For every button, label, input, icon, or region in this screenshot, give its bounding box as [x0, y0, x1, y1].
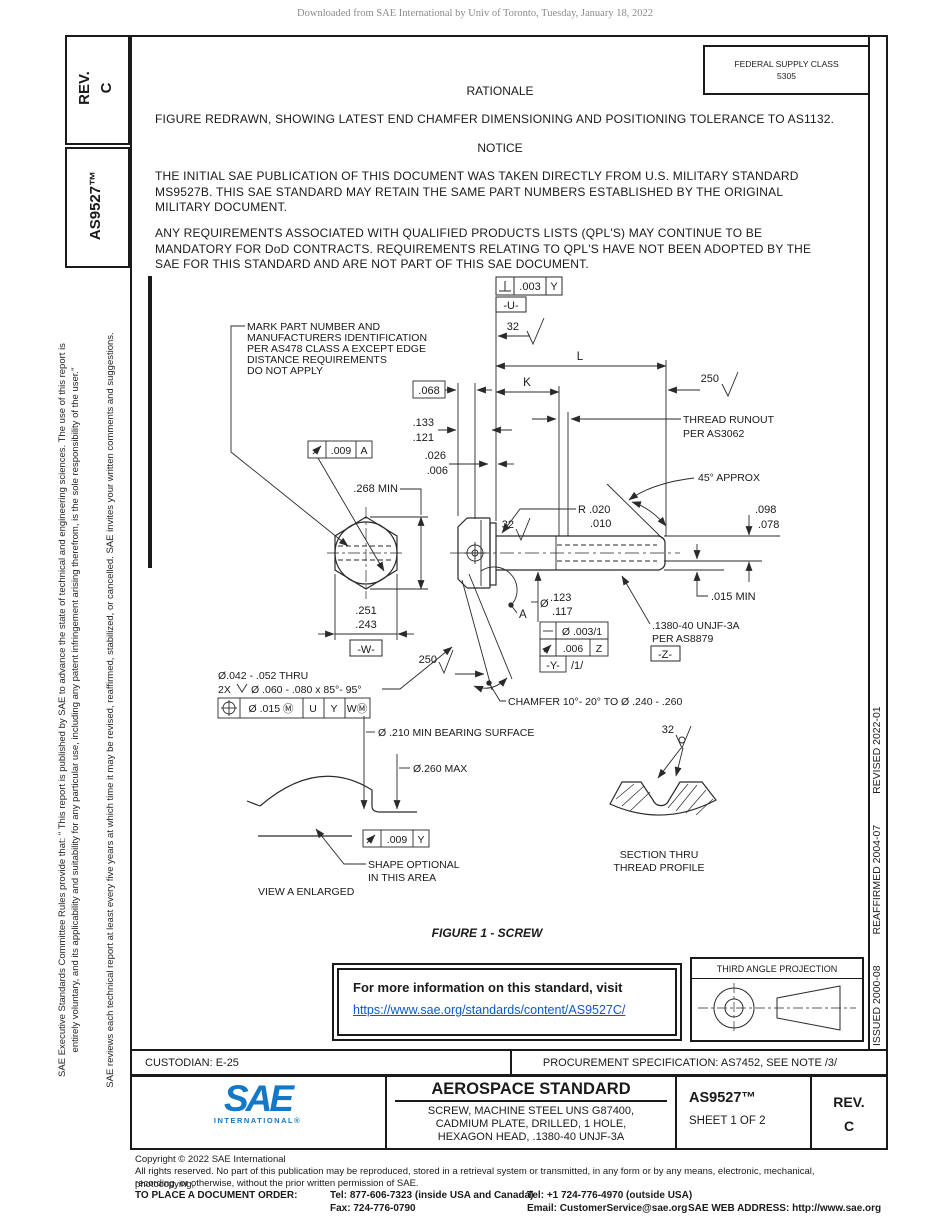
- order-tel-1: Tel: 877-606-7323 (inside USA and Canada…: [330, 1190, 533, 1201]
- custodian-cell: CUSTODIAN: E-25: [145, 1057, 239, 1069]
- dim-r010-label: .010: [590, 518, 611, 530]
- finish-32-top: 32: [498, 318, 544, 344]
- thread-note-2: PER AS8879: [652, 633, 713, 645]
- figure-caption: FIGURE 1 - SCREW: [432, 926, 544, 940]
- pos-datum-3: WⓂ: [347, 703, 368, 715]
- extension-lines: [458, 312, 666, 536]
- more-info-box: For more information on this standard, v…: [332, 963, 682, 1041]
- section-thread-profile: [610, 782, 716, 815]
- dim-026-006: .026 .006: [425, 450, 514, 477]
- dim-260-max: Ø.260 MAX: [397, 754, 467, 809]
- shape-note-1: SHAPE OPTIONAL: [368, 859, 460, 871]
- doc-type-underline: [395, 1100, 667, 1102]
- doc-number-cell: AS9527™ SHEET 1 OF 2: [689, 1090, 765, 1127]
- change-bar: [148, 276, 152, 568]
- straightness-tol: Ø .003/1: [562, 626, 602, 638]
- doc-number-vertical: AS9527™: [85, 171, 107, 240]
- dim-015-label: .015 MIN: [711, 591, 756, 603]
- sae-logo: SAE INTERNATIONAL®: [130, 1082, 385, 1125]
- dim-K-label: K: [523, 377, 531, 389]
- hex-head-view: [327, 507, 405, 599]
- sae-web-address: SAE WEB ADDRESS: http://www.sae.org: [688, 1203, 881, 1214]
- perp-tolerance: .003: [519, 281, 540, 293]
- doc-title-lines: SCREW, MACHINE STEEL UNS G87400, CADMIUM…: [387, 1105, 675, 1144]
- screw-side-view: [450, 518, 680, 588]
- shape-note-2: IN THIS AREA: [368, 872, 436, 884]
- datum-u-flag: -U-: [496, 297, 526, 312]
- copyright-line-1: Copyright © 2022 SAE International: [135, 1154, 286, 1167]
- notice-paragraph-1: THE INITIAL SAE PUBLICATION OF THIS DOCU…: [155, 169, 865, 216]
- datum-z-flag: -Z-: [651, 646, 680, 661]
- sheet-number: SHEET 1 OF 2: [689, 1115, 765, 1127]
- dim-45-label: 45° APPROX: [698, 472, 760, 484]
- dim-117-label: .117: [552, 606, 573, 618]
- position-icon: [221, 700, 237, 716]
- dim-268: .268 MIN: [353, 483, 428, 589]
- figure-1-screw-drawing: MARK PART NUMBER AND MANUFACTURERS IDENT…: [130, 270, 888, 960]
- copyright-line-3: recording, or otherwise, without the pri…: [135, 1178, 875, 1191]
- dim-45-chamfer: 45° APPROX: [607, 472, 760, 538]
- datum-y-label: -Y-: [546, 660, 560, 672]
- dim-123-117: Ø .123 .117: [531, 572, 573, 622]
- fcf-head-datum: A: [360, 445, 367, 457]
- titleblock-top-border: [130, 1074, 886, 1077]
- runout-note-2: PER AS3062: [683, 428, 744, 440]
- fcf-bearing-tol: .009: [387, 834, 408, 846]
- fcf-head-tol: .009: [331, 445, 352, 457]
- finish-250-top-label: 250: [701, 373, 719, 385]
- hole-note-2x: 2X: [218, 684, 231, 696]
- fsc-value: 5305: [777, 70, 796, 82]
- doc-title-line2: CADMIUM PLATE, DRILLED, 1 HOLE,: [387, 1118, 675, 1131]
- fcf-position: Ø .015 Ⓜ U Y WⓂ: [218, 698, 370, 718]
- order-fax: Fax: 724-776-0790: [330, 1203, 416, 1214]
- sae-logo-text: SAE: [130, 1082, 385, 1116]
- third-angle-projection-box: THIRD ANGLE PROJECTION: [690, 957, 864, 1042]
- order-email: Email: CustomerService@sae.org: [527, 1203, 687, 1214]
- fcf-straightness: Ø .003/1: [540, 622, 608, 639]
- doc-type-title: AEROSPACE STANDARD: [387, 1080, 675, 1099]
- procurement-cell: PROCUREMENT SPECIFICATION: AS7452, SEE N…: [512, 1057, 868, 1069]
- fsc-label: FEDERAL SUPPLY CLASS: [734, 58, 838, 70]
- datum-y-flag: -Y- /1/: [540, 656, 584, 672]
- dim-r020: R .020 .010: [502, 504, 611, 533]
- bearing-note: Ø .210 MIN BEARING SURFACE: [378, 727, 534, 739]
- rev-cell: REV. C: [812, 1090, 886, 1138]
- notice-title: NOTICE: [130, 141, 870, 155]
- dim-dia-symbol: Ø: [540, 598, 549, 610]
- dim-068-label: .068: [418, 385, 439, 397]
- dim-L: L: [496, 351, 666, 366]
- detail-a-callout: A: [481, 567, 527, 621]
- dim-098-078: .098 .078: [664, 504, 780, 582]
- download-watermark: Downloaded from SAE International by Uni…: [0, 8, 950, 19]
- pos-tolerance: Ø .015 Ⓜ: [249, 703, 294, 715]
- issued-date: ISSUED 2000-08: [871, 965, 883, 1046]
- countersink-icon: [237, 684, 247, 692]
- dim-251-label: .251: [355, 605, 376, 617]
- order-tel-2: Tel: +1 724-776-4970 (outside USA): [527, 1190, 692, 1201]
- pos-datum-1: U: [309, 703, 317, 715]
- legal-sidebar: SAE Executive Standards Committee Rules …: [56, 274, 117, 1146]
- per-inch-label: /1/: [571, 660, 584, 672]
- standard-link[interactable]: https://www.sae.org/standards/content/AS…: [353, 1003, 625, 1017]
- custodian-top-border: [130, 1049, 886, 1051]
- dim-268-label: .268 MIN: [353, 483, 398, 495]
- perp-datum: Y: [550, 281, 558, 293]
- rationale-body: FIGURE REDRAWN, SHOWING LATEST END CHAMF…: [155, 112, 865, 128]
- perpendicularity-icon: [499, 281, 511, 291]
- rev-cell-value: C: [812, 1114, 886, 1138]
- finish-250-bottom: 250: [419, 650, 484, 674]
- section-label-2: THREAD PROFILE: [613, 862, 704, 874]
- finish-32-top-label: 32: [507, 321, 519, 333]
- dim-078-label: .078: [758, 519, 779, 531]
- circular-runout-icon: [313, 446, 321, 454]
- order-label: TO PLACE A DOCUMENT ORDER:: [135, 1190, 297, 1201]
- fcf-runout-datum: Z: [596, 643, 603, 655]
- dim-068-group: .068: [413, 381, 492, 398]
- third-angle-symbol: [692, 979, 862, 1037]
- notice-paragraph-2: ANY REQUIREMENTS ASSOCIATED WITH QUALIFI…: [155, 226, 865, 273]
- fcf-runout-tol: .006: [563, 643, 584, 655]
- mark-note-l5: DO NOT APPLY: [247, 365, 323, 377]
- dim-006-label: .006: [427, 465, 448, 477]
- rev-value: C: [96, 83, 118, 94]
- legal-line-2: entirely voluntary, and its applicabilit…: [69, 274, 82, 1146]
- hole-note-2: Ø .060 - .080 x 85°- 95°: [251, 684, 362, 696]
- datum-w-flag: -W-: [350, 640, 382, 656]
- dim-L-label: L: [577, 351, 584, 363]
- dia-260-label: Ø.260 MAX: [413, 763, 467, 775]
- rationale-title: RATIONALE: [130, 84, 870, 98]
- chamfer-note: CHAMFER 10°- 20° TO Ø .240 - .260: [508, 696, 682, 708]
- dim-K: K: [496, 377, 559, 392]
- fcf-head-runout: .009 A: [308, 441, 384, 571]
- hole-note: Ø.042 - .052 THRU 2X Ø .060 - .080 x 85°…: [218, 647, 452, 696]
- doc-number-main: AS9527™: [689, 1090, 765, 1106]
- hole-note-1: Ø.042 - .052 THRU: [218, 670, 308, 682]
- finish-32-section-label: 32: [662, 724, 674, 736]
- finish-250-top: 250: [668, 372, 738, 396]
- third-angle-label: THIRD ANGLE PROJECTION: [692, 959, 862, 979]
- dim-133-121: .133 .121: [413, 417, 512, 444]
- circular-runout-icon-3: [367, 835, 375, 843]
- thread-callout: .1380-40 UNJF-3A PER AS8879: [622, 576, 740, 645]
- doc-title-line1: SCREW, MACHINE STEEL UNS G87400,: [387, 1105, 675, 1118]
- runout-note-1: THREAD RUNOUT: [683, 414, 775, 426]
- fcf-perpendicularity: .003 Y: [496, 277, 562, 295]
- doc-number-text: AS9527™: [69, 149, 123, 262]
- doc-title-line3: HEXAGON HEAD, .1380-40 UNJF-3A: [387, 1131, 675, 1144]
- sae-logo-subtext: INTERNATIONAL®: [130, 1116, 385, 1125]
- detail-a-label: A: [519, 609, 527, 621]
- view-a-enlarged: [247, 776, 417, 836]
- more-info-text: For more information on this standard, v…: [353, 980, 661, 995]
- legal-line-1: SAE Executive Standards Committee Rules …: [56, 274, 69, 1146]
- fcf-bearing-datum: Y: [417, 834, 424, 846]
- titleblock-v2: [675, 1074, 677, 1148]
- dim-133-label: .133: [413, 417, 434, 429]
- pos-datum-2: Y: [330, 703, 337, 715]
- legal-line-3: SAE reviews each technical report at lea…: [104, 274, 117, 1146]
- fcf-bearing-runout: .009 Y: [363, 830, 429, 847]
- datum-u-label: -U-: [503, 300, 519, 312]
- dim-015-min: .015 MIN: [697, 544, 756, 603]
- dim-098-label: .098: [755, 504, 776, 516]
- rev-box-text: REV. C: [69, 37, 123, 139]
- fcf-thread-runout: .006 Z: [540, 639, 608, 656]
- mark-note: MARK PART NUMBER AND MANUFACTURERS IDENT…: [247, 321, 427, 377]
- thread-note-1: .1380-40 UNJF-3A: [652, 620, 740, 632]
- datum-z-label: -Z-: [658, 649, 672, 661]
- section-label-1: SECTION THRU: [620, 849, 699, 861]
- dim-026-label: .026: [425, 450, 446, 462]
- circular-runout-icon-2: [544, 645, 551, 652]
- rev-cell-label: REV.: [812, 1090, 886, 1114]
- finish-250-bottom-label: 250: [419, 654, 437, 666]
- dim-r020-label: R .020: [578, 504, 610, 516]
- rev-label: REV.: [74, 71, 96, 105]
- view-a-label: VIEW A ENLARGED: [258, 886, 355, 898]
- dim-243-label: .243: [355, 619, 376, 631]
- chamfer-cone: CHAMFER 10°- 20° TO Ø .240 - .260: [462, 574, 682, 708]
- dim-123-label: .123: [550, 592, 571, 604]
- datum-w-label: -W-: [357, 644, 375, 656]
- hatching: [616, 784, 713, 815]
- finish-32-section: 32: [658, 724, 691, 778]
- finish-32-shank: 32: [502, 518, 530, 540]
- dim-121-label: .121: [413, 432, 434, 444]
